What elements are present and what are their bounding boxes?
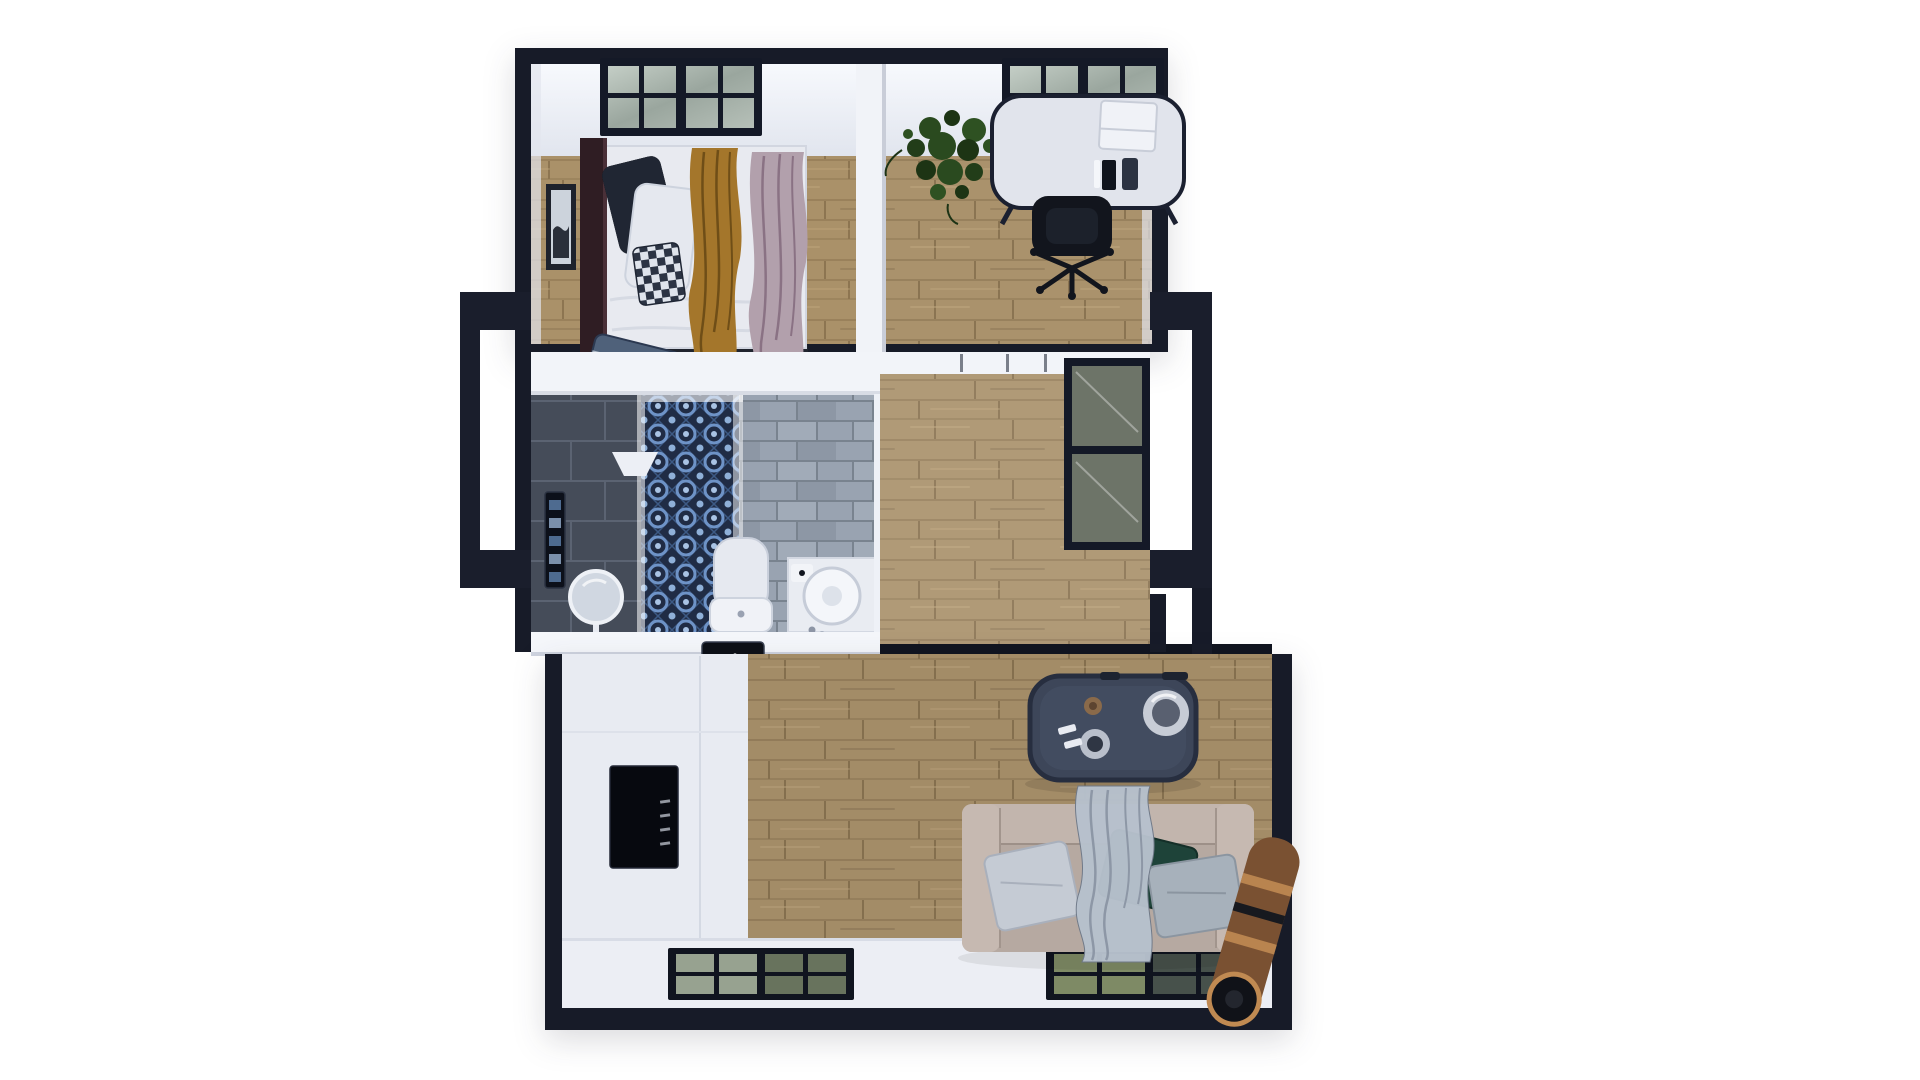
left-inner-wall-shade <box>531 64 541 344</box>
room-divider-wall <box>856 64 884 352</box>
wall-art <box>546 184 576 270</box>
shower-glass-left <box>637 402 645 632</box>
room-divider-wall-edge <box>882 64 886 352</box>
laptop <box>1099 101 1157 152</box>
sofa <box>962 786 1254 962</box>
vanity-sink <box>788 558 880 637</box>
coffee-table <box>1030 672 1196 780</box>
desk-phone <box>1102 160 1116 190</box>
headboard <box>580 138 606 356</box>
shower-control-panel <box>545 492 565 588</box>
toilet <box>710 538 772 632</box>
checkered-pillow <box>632 242 686 306</box>
middle-left-wall <box>515 352 531 652</box>
built-in-oven <box>610 766 678 868</box>
floor-plan-stage <box>0 0 1920 1080</box>
bathroom-top-wall-cap <box>531 352 880 394</box>
bathroom-top-wall-shadow <box>531 391 880 395</box>
balcony-door <box>1064 358 1150 550</box>
middle-module <box>460 292 1272 702</box>
desk-stand <box>1122 158 1138 190</box>
bottom-module <box>545 654 1305 1030</box>
desk-pen <box>1094 160 1100 188</box>
draped-blanket <box>1075 786 1154 962</box>
floor-window-left <box>668 948 854 1000</box>
bedroom-window <box>600 58 762 136</box>
light-grey-cushion <box>983 840 1081 932</box>
mustard-throw <box>689 148 742 378</box>
floor-plan-canvas <box>0 0 1920 1080</box>
shower-glass-top <box>637 395 743 402</box>
bathroom <box>531 352 882 650</box>
